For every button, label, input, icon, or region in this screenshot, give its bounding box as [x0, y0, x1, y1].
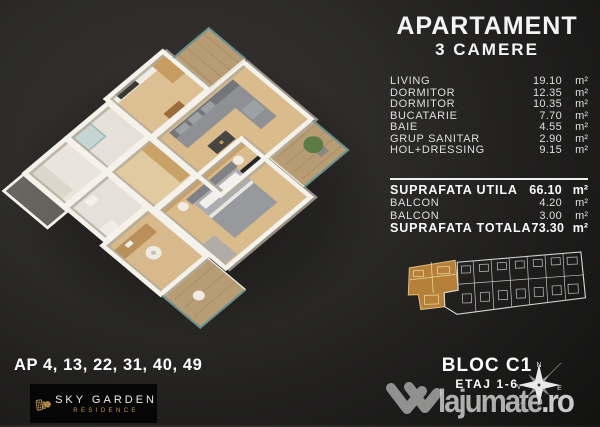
- panel-title: APARTAMENT 3 CAMERE: [378, 13, 596, 59]
- room-row: LIVING 19.10 m²: [390, 76, 588, 88]
- area-unit: m²: [562, 76, 588, 88]
- room-area-value: 10.35: [455, 99, 562, 111]
- apartment-numbers: AP 4, 13, 22, 31, 40, 49: [14, 356, 202, 375]
- room-row: HOL+DRESSING 9.15 m²: [390, 145, 588, 157]
- room-label: LIVING: [390, 76, 430, 88]
- brand-name: SKY GARDEN: [55, 394, 157, 406]
- apartment-subtitle: 3 CAMERE: [378, 40, 596, 59]
- total-area-value: 4.20: [439, 197, 562, 209]
- total-area-value: 3.00: [439, 210, 562, 222]
- apartment-title: APARTAMENT: [378, 13, 596, 39]
- compass-north-label: N: [536, 362, 541, 369]
- room-row: DORMITOR 10.35 m²: [390, 99, 588, 111]
- room-label: DORMITOR: [390, 99, 455, 111]
- building-unit-lines: [457, 253, 585, 312]
- area-unit: m²: [562, 184, 588, 197]
- room-label: BAIE: [390, 122, 418, 134]
- room-area-value: 4.55: [418, 122, 562, 134]
- total-label: SUPRAFATA UTILA: [390, 184, 518, 197]
- total-area-value: 73.30: [531, 222, 564, 235]
- area-unit: m²: [564, 222, 588, 235]
- brand-subtitle: RESIDENCE: [73, 408, 139, 414]
- watermark-text: lajumate.ro: [438, 375, 573, 427]
- area-unit: m²: [562, 99, 588, 111]
- total-row: SUPRAFATA UTILA 66.10 m²: [390, 184, 588, 197]
- room-row: BAIE 4.55 m²: [390, 122, 588, 134]
- listing-image: { "title": { "line1": "APARTAMENT", "lin…: [0, 0, 600, 425]
- total-area-value: 66.10: [518, 184, 562, 197]
- room-area-list: LIVING 19.10 m² DORMITOR 12.35 m² DORMIT…: [390, 76, 588, 157]
- total-row: BALCON 3.00 m²: [390, 210, 588, 222]
- area-unit: m²: [562, 122, 588, 134]
- total-label: SUPRAFATA TOTALA: [390, 222, 531, 235]
- total-row: BALCON 4.20 m²: [390, 197, 588, 209]
- sky-garden-logo: SKY GARDEN RESIDENCE: [30, 384, 157, 423]
- highlighted-apartment-shape: [407, 260, 459, 310]
- total-row: SUPRAFATA TOTALA 73.30 m²: [390, 222, 588, 235]
- building-floorplan-overview: [396, 245, 590, 325]
- area-unit: m²: [562, 197, 588, 209]
- totals-list: SUPRAFATA UTILA 66.10 m² BALCON 4.20 m² …: [390, 184, 588, 235]
- room-area-value: 19.10: [430, 76, 562, 88]
- room-area-value: 9.15: [485, 145, 562, 157]
- floorplan-3d-render: [0, 0, 388, 368]
- sky-garden-logo-text: SKY GARDEN RESIDENCE: [55, 394, 157, 414]
- total-label: BALCON: [390, 197, 439, 209]
- total-label: BALCON: [390, 210, 439, 222]
- area-unit: m²: [562, 210, 588, 222]
- totals-divider: [390, 178, 588, 180]
- lajumate-watermark: lajumate.ro: [384, 369, 585, 427]
- room-label: HOL+DRESSING: [390, 145, 485, 157]
- sky-garden-buildings-icon: [35, 388, 51, 420]
- lajumate-w-icon: [384, 372, 442, 424]
- area-unit: m²: [562, 145, 588, 157]
